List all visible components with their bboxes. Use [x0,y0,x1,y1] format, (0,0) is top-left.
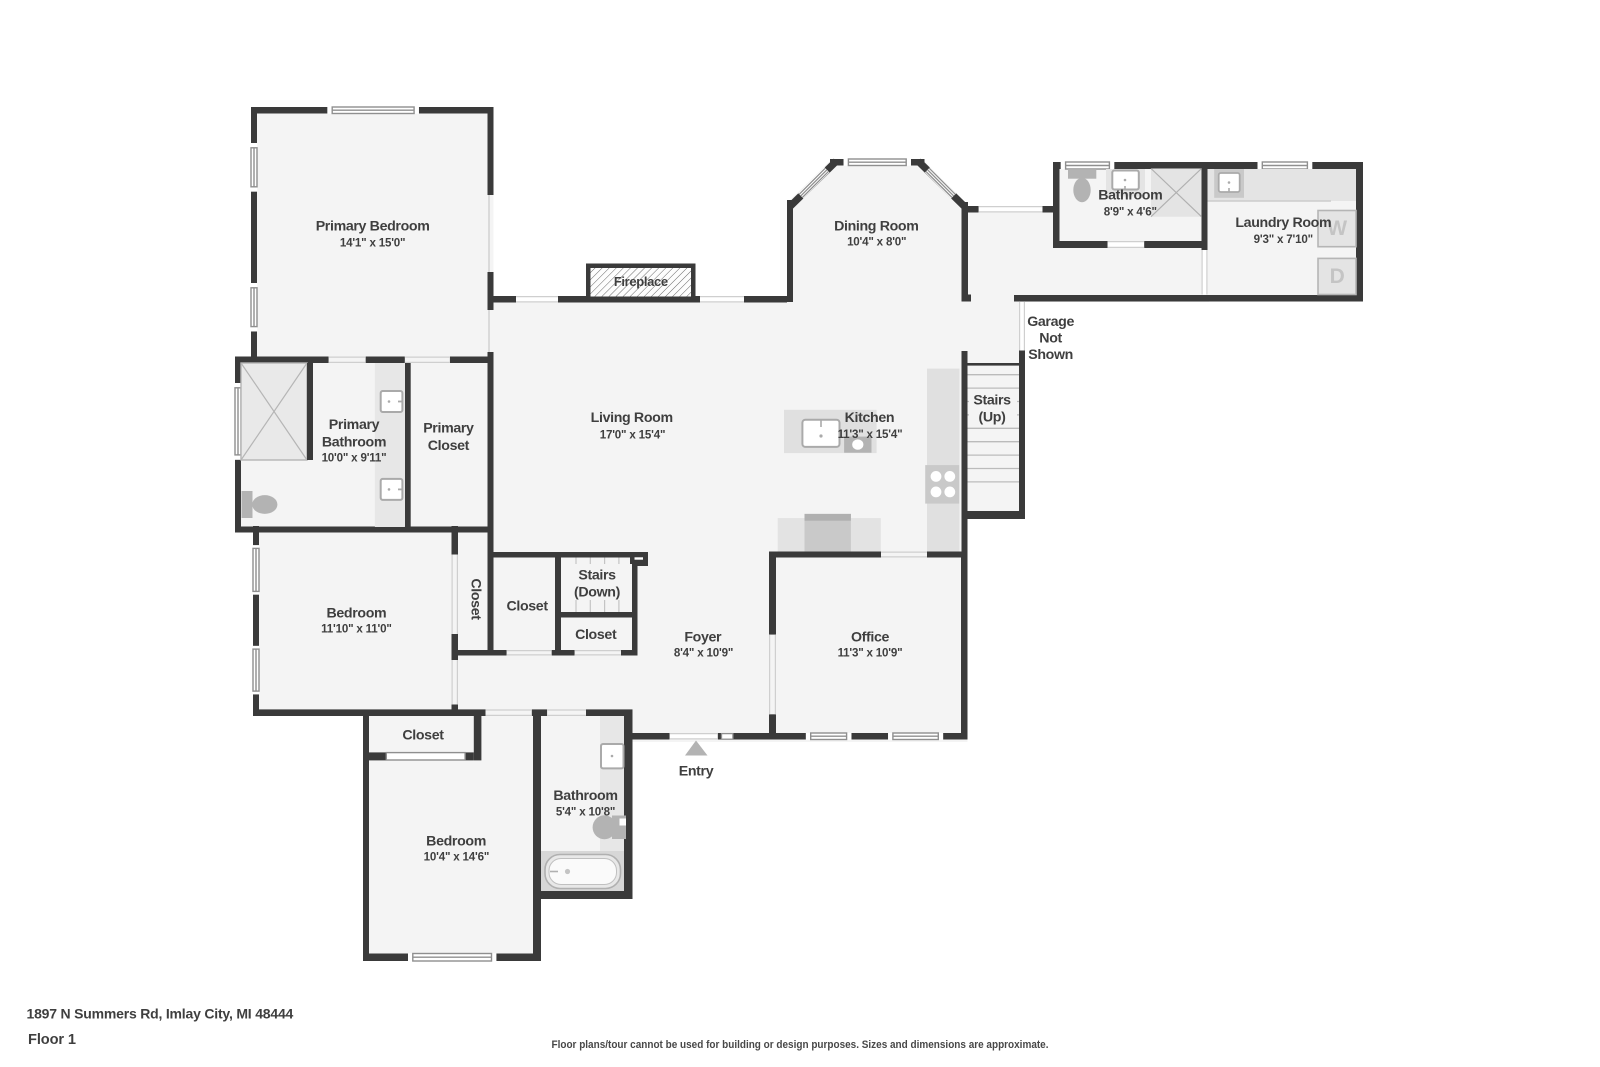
svg-text:Shown: Shown [1028,347,1073,363]
svg-text:Foyer: Foyer [684,629,722,645]
svg-text:Stairs: Stairs [578,568,616,584]
svg-text:D: D [1330,265,1345,288]
svg-text:Entry: Entry [679,764,714,780]
svg-text:11'10" x 11'0": 11'10" x 11'0" [321,623,391,636]
svg-text:Laundry Room: Laundry Room [1235,215,1331,231]
svg-text:1897 N Summers Rd, Imlay City,: 1897 N Summers Rd, Imlay City, MI 48444 [27,1006,294,1022]
svg-text:Dining Room: Dining Room [834,219,918,235]
svg-text:10'4" x 8'0": 10'4" x 8'0" [847,236,906,249]
svg-text:Bathroom: Bathroom [1098,188,1162,204]
svg-text:Primary: Primary [423,421,474,437]
svg-text:Stairs: Stairs [973,393,1011,409]
svg-text:9'3" x 7'10": 9'3" x 7'10" [1254,233,1313,246]
svg-text:Garage: Garage [1027,314,1074,330]
svg-text:Bedroom: Bedroom [326,606,386,622]
svg-text:Bedroom: Bedroom [426,833,486,849]
svg-text:8'4" x 10'9": 8'4" x 10'9" [674,646,733,659]
svg-text:Floor plans/tour cannot be use: Floor plans/tour cannot be used for buil… [552,1039,1049,1051]
svg-text:Closet: Closet [506,599,548,615]
svg-text:17'0" x 15'4": 17'0" x 15'4" [600,428,666,441]
svg-text:Closet: Closet [468,578,484,620]
svg-text:Office: Office [851,629,890,645]
svg-text:Bathroom: Bathroom [322,435,386,451]
svg-text:Bathroom: Bathroom [553,788,617,804]
svg-text:(Down): (Down) [574,585,621,601]
svg-text:Living Room: Living Room [591,410,673,426]
svg-text:Primary Bedroom: Primary Bedroom [316,219,430,235]
svg-text:Closet: Closet [575,627,617,643]
svg-text:Closet: Closet [402,727,444,743]
svg-text:11'3" x 15'4": 11'3" x 15'4" [838,428,903,441]
svg-text:11'3" x 10'9": 11'3" x 10'9" [838,647,903,660]
svg-text:10'4" x 14'6": 10'4" x 14'6" [424,851,490,864]
svg-text:Floor 1: Floor 1 [28,1032,76,1048]
svg-text:5'4" x 10'8": 5'4" x 10'8" [556,806,615,819]
svg-text:Not: Not [1039,331,1062,347]
svg-text:Kitchen: Kitchen [845,410,895,426]
svg-text:(Up): (Up) [979,410,1007,426]
svg-text:Fireplace: Fireplace [614,274,668,289]
svg-text:10'0" x 9'11": 10'0" x 9'11" [322,452,387,465]
svg-text:14'1" x 15'0": 14'1" x 15'0" [340,236,406,249]
svg-text:Closet: Closet [428,438,470,454]
svg-text:Primary: Primary [329,417,380,433]
svg-text:8'9" x 4'6": 8'9" x 4'6" [1104,206,1157,219]
